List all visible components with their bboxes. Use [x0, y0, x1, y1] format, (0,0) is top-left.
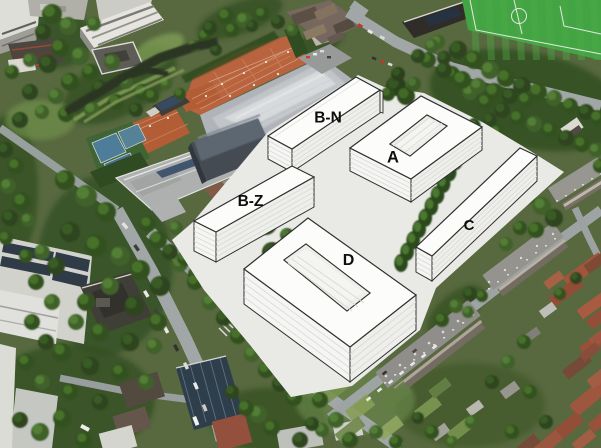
svg-text:B-N: B-N: [314, 110, 342, 127]
svg-text:C: C: [464, 217, 475, 234]
svg-text:B-Z: B-Z: [238, 193, 264, 210]
svg-text:D: D: [343, 252, 355, 269]
svg-text:A: A: [387, 149, 399, 167]
